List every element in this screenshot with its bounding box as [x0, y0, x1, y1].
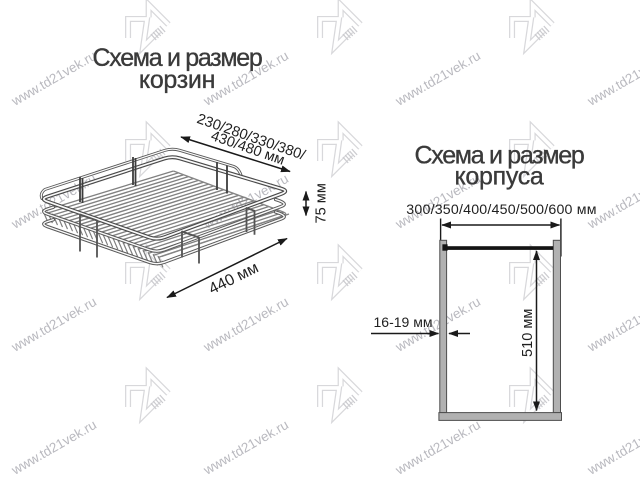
svg-text:16-19 мм: 16-19 мм	[374, 314, 433, 330]
svg-text:75 мм: 75 мм	[314, 183, 330, 223]
svg-text:510 мм: 510 мм	[520, 309, 536, 357]
svg-text:корпуса: корпуса	[454, 163, 543, 191]
svg-text:300/350/400/450/500/600 мм: 300/350/400/450/500/600 мм	[406, 202, 596, 218]
svg-text:корзин: корзин	[139, 66, 215, 94]
